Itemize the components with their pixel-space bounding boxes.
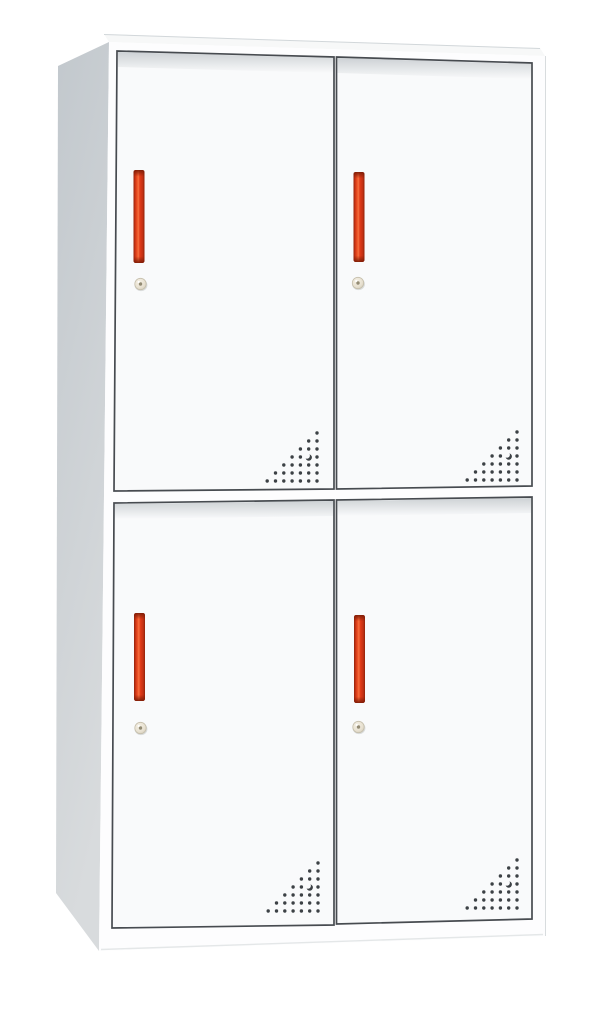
vent-hole [282, 463, 285, 466]
vent-hole [315, 479, 318, 482]
door-panel [114, 51, 334, 491]
vent-hole [490, 882, 493, 885]
vent-hole [290, 471, 293, 474]
vent-hole [515, 874, 518, 877]
vent-hole [316, 885, 319, 888]
vent-hole [490, 454, 493, 457]
door-panel [112, 500, 334, 928]
vent-hole [507, 906, 510, 909]
vent-hole [499, 890, 502, 893]
vent-hole [267, 909, 270, 912]
vent-hole [307, 463, 310, 466]
vent-hole [515, 430, 518, 433]
vent-hole [299, 479, 302, 482]
vent-hole [490, 470, 493, 473]
vent-hole [507, 470, 510, 473]
vent-hole [291, 893, 294, 896]
vent-hole [266, 479, 269, 482]
vent-hole [316, 901, 319, 904]
vent-hole [490, 898, 493, 901]
locker-door-bottom-right [337, 497, 533, 924]
vent-hole [474, 470, 477, 473]
vent-hole [283, 909, 286, 912]
vent-hole [308, 901, 311, 904]
locker-cabinet-illustration [0, 0, 605, 1009]
vent-hole [499, 898, 502, 901]
vent-hole [507, 874, 510, 877]
vent-hole [299, 471, 302, 474]
vent-hole [275, 901, 278, 904]
vent-hole [499, 906, 502, 909]
vent-hole [299, 455, 302, 458]
vent-hole [507, 866, 510, 869]
vent-hole [283, 893, 286, 896]
vent-hole [507, 890, 510, 893]
product-image [0, 0, 605, 1009]
vent-hole [515, 858, 518, 861]
vent-hole [308, 877, 311, 880]
door-top-shadow [338, 498, 532, 516]
vent-hole [316, 909, 319, 912]
vent-hole [515, 898, 518, 901]
vent-hole [482, 898, 485, 901]
vent-hole [316, 893, 319, 896]
vent-hole [490, 478, 493, 481]
vent-hole [507, 438, 510, 441]
vent-hole [507, 462, 510, 465]
vent-hole [499, 478, 502, 481]
vent-hole [307, 471, 310, 474]
door-top-shadow [115, 501, 333, 519]
vent-hole [507, 898, 510, 901]
vent-hole [308, 909, 311, 912]
vent-hole [315, 431, 318, 434]
vent-hole [316, 861, 319, 864]
vent-hole [507, 446, 510, 449]
vent-hole [482, 470, 485, 473]
vent-hole [482, 906, 485, 909]
vent-hole [275, 909, 278, 912]
vent-hole [515, 462, 518, 465]
vent-hole [499, 454, 502, 457]
vent-hole [290, 463, 293, 466]
vent-hole [499, 470, 502, 473]
vent-hole [316, 877, 319, 880]
vent-hole [499, 874, 502, 877]
door-panel [337, 57, 533, 489]
vent-hole [499, 882, 502, 885]
vent-hole [300, 893, 303, 896]
vent-hole [308, 869, 311, 872]
vent-hole [307, 439, 310, 442]
vent-hole [474, 478, 477, 481]
vent-hole [315, 471, 318, 474]
vent-hole [499, 462, 502, 465]
vent-hole [490, 462, 493, 465]
door-handle [134, 170, 145, 263]
vent-hole [307, 479, 310, 482]
vent-hole [315, 439, 318, 442]
vent-hole [482, 478, 485, 481]
vent-hole [307, 447, 310, 450]
vent-hole [490, 890, 493, 893]
door-handle [134, 613, 145, 701]
vent-hole [315, 455, 318, 458]
vent-hole [291, 909, 294, 912]
vent-hole [499, 446, 502, 449]
vent-hole [300, 885, 303, 888]
vent-hole [466, 478, 469, 481]
vent-hole [290, 455, 293, 458]
vent-hole [282, 479, 285, 482]
vent-hole [315, 447, 318, 450]
vent-hole [282, 471, 285, 474]
vent-hole [515, 438, 518, 441]
vent-hole [274, 479, 277, 482]
vent-hole [515, 478, 518, 481]
vent-hole [315, 463, 318, 466]
vent-hole [507, 478, 510, 481]
vent-hole [466, 906, 469, 909]
locker-door-top-right [337, 57, 533, 489]
vent-hole [291, 901, 294, 904]
vent-hole [316, 869, 319, 872]
vent-hole [283, 901, 286, 904]
vent-hole [290, 479, 293, 482]
vent-hole [490, 906, 493, 909]
door-handle [354, 172, 365, 262]
vent-hole [515, 454, 518, 457]
vent-hole [299, 463, 302, 466]
vent-hole [515, 470, 518, 473]
locker-door-top-left [114, 51, 334, 491]
vent-hole [300, 901, 303, 904]
vent-hole [274, 471, 277, 474]
vent-hole [515, 906, 518, 909]
door-panel [337, 497, 533, 924]
vent-hole [300, 877, 303, 880]
locker-door-bottom-left [112, 500, 334, 928]
vent-hole [300, 909, 303, 912]
vent-hole [474, 906, 477, 909]
vent-hole [291, 885, 294, 888]
vent-hole [515, 866, 518, 869]
vent-hole [308, 893, 311, 896]
vent-hole [482, 462, 485, 465]
vent-hole [515, 882, 518, 885]
vent-hole [474, 898, 477, 901]
vent-hole [515, 890, 518, 893]
vent-hole [482, 890, 485, 893]
vent-hole [515, 446, 518, 449]
vent-hole [299, 447, 302, 450]
door-handle [354, 615, 365, 703]
